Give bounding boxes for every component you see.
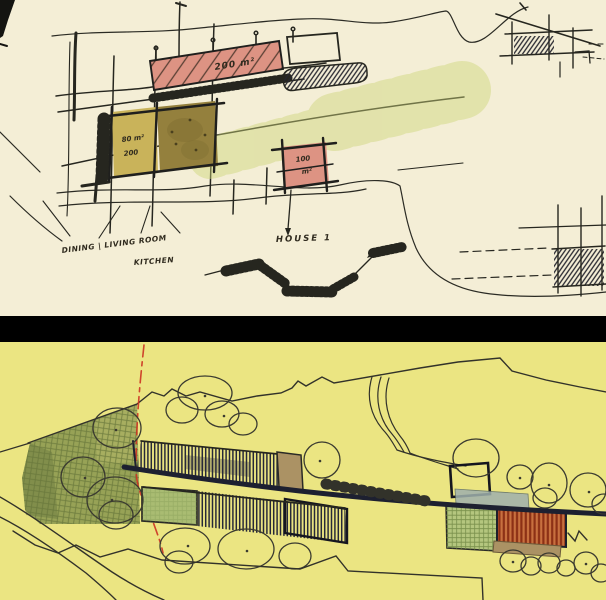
divider-band: [0, 316, 606, 342]
bottom-sketch: [0, 342, 606, 600]
house-area-label2: m²: [301, 167, 313, 176]
stair-ticks: [102, 119, 104, 177]
house-label: HOUSE 1: [276, 233, 332, 245]
top-sketch: 200 m² 80 m² 200: [0, 0, 606, 316]
scanned-sketch-image: 200 m² 80 m² 200: [0, 0, 606, 600]
sketch-svg: 200 m² 80 m² 200: [0, 0, 606, 600]
